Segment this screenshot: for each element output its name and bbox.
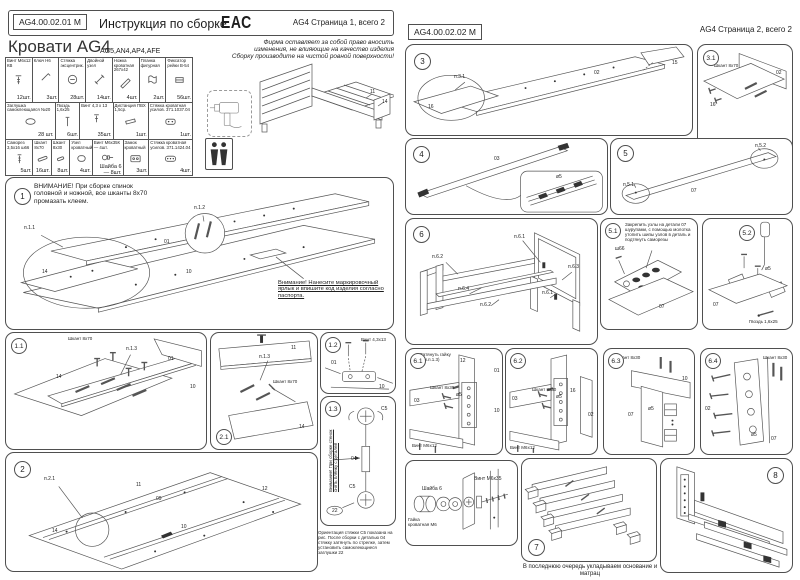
detail-ref-label: п.2.1 bbox=[44, 477, 55, 483]
part-label: 14 bbox=[56, 375, 62, 381]
step5-drawing bbox=[611, 139, 792, 214]
part-qty: 2шт. bbox=[141, 95, 165, 101]
step1-1-drawing bbox=[6, 333, 206, 449]
part-name: Ножка кроватная 267х42 bbox=[114, 59, 138, 73]
step-panel-5-2: 5.2 ø5 07 Гвоздь 1,6х25 bbox=[702, 218, 793, 330]
part-name: Шкант 8х30 bbox=[53, 141, 68, 150]
step-number-2: 2 bbox=[14, 461, 31, 478]
cam-label: С5 bbox=[381, 407, 387, 413]
tools-stamp bbox=[207, 90, 252, 137]
part-label: 10 bbox=[494, 409, 500, 415]
part-cell: Стяжка эксцентрик. 28шт. bbox=[59, 58, 86, 102]
step-panel-6-2: 6.2 03 Шкант 8х30 ø5 16 02 Винт М6х12 bbox=[505, 348, 598, 455]
step-panel-6-3: 6.3 Шкант 8х30 10 ø5 07 bbox=[603, 348, 695, 455]
step-panel-2: 2 п.2.1 11 09 12 10 14 bbox=[5, 452, 318, 572]
page-info: AG4 Страница 2, всего 2 bbox=[700, 26, 792, 35]
step4-drawing bbox=[406, 139, 607, 214]
part-label: 02 bbox=[705, 407, 711, 413]
shaped-plate-icon bbox=[146, 73, 159, 86]
product-models: AG5,AN4,AP4,AFE bbox=[100, 48, 160, 56]
part-label: 10 bbox=[186, 270, 192, 276]
part-name: Стяжка эксцентрик. bbox=[60, 59, 84, 68]
double-bolt-icon bbox=[93, 73, 106, 86]
part-qty: 5шт. bbox=[7, 168, 31, 174]
hex-key-icon bbox=[39, 70, 52, 83]
step6-1-note: Затянуть гайку (см.п.1.3) bbox=[420, 352, 460, 362]
cam-orientation-caption: Ориентация стяжки С5 показана на рис. По… bbox=[318, 530, 396, 555]
part-label: 12 bbox=[460, 359, 466, 365]
part-name: Ключ Н6 bbox=[34, 59, 58, 64]
nut-label: Гайка кроватная М6 bbox=[408, 517, 438, 527]
detail-ref-label: п.1.3 bbox=[259, 355, 270, 361]
part-name: Замок кроватный bbox=[125, 141, 148, 150]
step-number-1-2: 1.2 bbox=[325, 337, 341, 353]
detail-ref-label: п.6.2 bbox=[480, 303, 491, 309]
cam-lock-icon bbox=[66, 73, 79, 86]
doc-code: AG4.00.02.01 М bbox=[13, 14, 87, 30]
step6-drawing bbox=[406, 219, 597, 344]
dowel-label: Шкант 8х30 bbox=[763, 355, 789, 360]
detail-ref-label: п.3.1 bbox=[454, 75, 465, 81]
eac-logo: ЕАС bbox=[221, 13, 252, 33]
part-label: 11 bbox=[136, 483, 141, 489]
part-qty: 4шт. bbox=[114, 95, 138, 101]
dowel-label: Шкант 8х30 bbox=[430, 385, 454, 390]
detail-ref-label: п.1.3 bbox=[126, 347, 137, 353]
step-number-6-4: 6.4 bbox=[705, 353, 721, 369]
part-cell: Шкант 8х30 8шт. bbox=[52, 140, 70, 175]
part-name: Стяжка кроватная усилов. 371.1037.04 bbox=[150, 104, 191, 113]
detail-ref-label: п.1.2 bbox=[194, 206, 205, 212]
step-number-4: 4 bbox=[413, 146, 430, 163]
film-note: Внимание! При сборке стенок снять плёнку… bbox=[328, 428, 338, 492]
step-panel-1-2: 1.2 Винт 4,3х13 01 10 bbox=[320, 332, 396, 394]
nail-icon bbox=[61, 115, 74, 128]
manufacturer-note: Фирма оставляет за собой право вносить и… bbox=[240, 39, 394, 53]
parts-table: Винт М6х12 КВ 12шт. Ключ Н6 3шт. Стяжка … bbox=[5, 57, 193, 176]
step-number-1-3: 1.3 bbox=[325, 401, 341, 417]
dowel-icon bbox=[54, 152, 67, 165]
part-label: 10 bbox=[682, 377, 688, 383]
part-label: 01 bbox=[494, 369, 500, 375]
part-label: 14 bbox=[382, 100, 388, 106]
step-panel-1-3: 1.3 Внимание! При сборке стенок снять пл… bbox=[320, 396, 396, 526]
dowel-label: Шкант 8х70 bbox=[273, 379, 297, 384]
bolt-detail-drawing bbox=[406, 461, 517, 545]
part-qty: Шайба 6 — 8шт. bbox=[94, 164, 122, 175]
part-label: 03 bbox=[512, 397, 518, 403]
part-qty: 6шт. bbox=[57, 132, 79, 138]
part-name: Фиксатор рейки В-54 bbox=[167, 59, 191, 68]
step3-drawing bbox=[406, 45, 692, 135]
two-person-carry-box bbox=[205, 138, 233, 170]
part-qty: 28 шт. bbox=[7, 132, 54, 138]
part-label: 16 bbox=[710, 103, 716, 109]
pvc-spacer-icon bbox=[124, 115, 137, 128]
bed-bracket-icon bbox=[164, 152, 177, 165]
detail-ref-label: п.5.1 bbox=[623, 183, 634, 189]
step-panel-6-4: 6.4 Шкант 8х30 02 ø5 07 bbox=[700, 348, 793, 455]
part-label: 07 bbox=[659, 305, 665, 311]
parts-row-3: Саморез 3,5х16 ш66 5шт. Шкант 8х70 16шт.… bbox=[6, 140, 192, 175]
instruction-page-2: AG4.00.02.02 М AG4 Страница 2, всего 2 3… bbox=[400, 0, 800, 580]
part-qty: 12шт. bbox=[7, 95, 31, 101]
part-name: Саморез 3,5х16 ш66 bbox=[7, 141, 31, 150]
part-label: 04 bbox=[351, 457, 357, 463]
part-cell: Гвоздь 1,6х25 6шт. bbox=[56, 103, 81, 140]
marking-note: Внимание! Нанесите маркировочный ярлык и… bbox=[278, 280, 390, 299]
part-cell: Стяжка кроватная усилов. 371.1424.04 4шт… bbox=[149, 140, 192, 175]
part-cell: Замок кроватный 3шт. bbox=[124, 140, 150, 175]
part-name: Гвоздь 1,6х25 bbox=[57, 104, 79, 113]
detail-ref-label: п.6.3 bbox=[568, 265, 579, 271]
washer-label: Шайба 6 bbox=[422, 487, 442, 493]
step-panel-1: 1 ВНИМАНИЕ! При сборке спинок головной и… bbox=[5, 177, 394, 330]
product-title: Кровати AG4 bbox=[8, 37, 111, 56]
part-cell: Заглушка самоклеющаяся №20 28 шт. bbox=[6, 103, 56, 140]
step-number-5-2: 5.2 bbox=[739, 225, 755, 241]
step-panel-5-1: 5.1 Закрепить узлы на детали 07 шурупами… bbox=[600, 218, 698, 330]
step7-caption: В последнюю очередь укладываем основание… bbox=[520, 564, 660, 577]
part-label: 15 bbox=[672, 61, 678, 67]
step2-drawing bbox=[6, 453, 317, 571]
screw-icon bbox=[90, 112, 103, 125]
step-panel-5: 5 п.5.2 п.5.1 07 bbox=[610, 138, 793, 215]
detail-ref-label: п.6.4 bbox=[458, 287, 469, 293]
step1-warning: ВНИМАНИЕ! При сборке спинок головной и н… bbox=[34, 183, 160, 205]
part-cell: Винт М6х12 КВ 12шт. bbox=[6, 58, 33, 102]
part-label: 03 bbox=[414, 399, 420, 405]
part-name: Винт М6х12 КВ bbox=[7, 59, 31, 68]
step-number-5: 5 bbox=[617, 145, 634, 162]
part-label: 07 bbox=[628, 413, 634, 419]
screw-label: Винт 4,3х13 bbox=[361, 337, 386, 342]
part-qty: 1шт. bbox=[115, 132, 147, 138]
lock-plate-icon bbox=[129, 152, 142, 165]
part-qty: 3шт. bbox=[125, 168, 148, 174]
step-number-5-1: 5.1 bbox=[605, 223, 621, 239]
part-qty: 8шт. bbox=[53, 168, 68, 174]
part-label: 10 bbox=[181, 525, 187, 531]
step-number-1-1: 1.1 bbox=[11, 338, 27, 354]
step-panel-7: 7 bbox=[521, 458, 657, 562]
step-number-8: 8 bbox=[767, 467, 784, 484]
bed-bracket-icon bbox=[164, 115, 177, 128]
part-name: Шкант 8х70 bbox=[34, 141, 49, 150]
dowel-label: Шкант 8х70 bbox=[714, 63, 738, 68]
part-cell: Стяжка кроватная усилов. 371.1037.04 1шт… bbox=[149, 103, 192, 140]
part-label: 11 bbox=[370, 90, 375, 96]
step-number-3: 3 bbox=[414, 53, 431, 70]
two-person-carry-icon bbox=[206, 139, 232, 169]
part-name: Винт 4,3 х 13 bbox=[81, 104, 111, 109]
part-label: 02 bbox=[594, 71, 600, 77]
assembly-instruction-scan: { "p1": { "header": {"doc_code":"AG4.00.… bbox=[0, 0, 800, 580]
step-number-6-3: 6.3 bbox=[608, 353, 624, 369]
diameter-label: ø5 bbox=[456, 393, 462, 399]
part-cell: Планка фигурная 2шт. bbox=[140, 58, 167, 102]
nail-label: Гвоздь 1,6х25 bbox=[749, 319, 778, 324]
detail-ref-label: п.6.2 bbox=[432, 255, 443, 261]
part-label: 14 bbox=[299, 425, 305, 431]
bolt-detail-panel: Шайба 6 Винт М6х35 Гайка кроватная М6 bbox=[405, 460, 518, 546]
bed-leg-icon bbox=[119, 76, 132, 89]
part-cell: Фиксатор рейки В-54 56шт. bbox=[166, 58, 192, 102]
part-name: Узел кроватный bbox=[71, 141, 91, 150]
part-name: Заглушка самоклеющаяся №20 bbox=[7, 104, 54, 113]
part-cell: Шкант 8х70 16шт. bbox=[33, 140, 51, 175]
slat-fixator-icon bbox=[173, 73, 186, 86]
doc-title: Инструкция по сборке bbox=[99, 17, 227, 31]
part-label: 07 bbox=[713, 303, 719, 309]
part-label: 10 bbox=[190, 385, 196, 391]
part-label: 12 bbox=[262, 487, 268, 493]
dowel-label: Шкант 8х30 bbox=[532, 387, 556, 392]
diameter-label: ø5 bbox=[556, 395, 562, 401]
step-panel-3: 3 п.3.1 02 15 16 bbox=[405, 44, 693, 136]
cap-icon bbox=[24, 115, 37, 128]
part-label: 02 bbox=[776, 71, 782, 77]
detail-ref-label: п.6.1 bbox=[514, 235, 525, 241]
part-label: 11 bbox=[291, 346, 296, 352]
part-label: 02 bbox=[588, 413, 594, 419]
step-number-7: 7 bbox=[528, 539, 545, 556]
part-label: 09 bbox=[156, 497, 162, 503]
step-number-2-1: 2.1 bbox=[216, 429, 232, 445]
part-name: Планка фигурная bbox=[141, 59, 165, 68]
part-label: 14 bbox=[52, 529, 58, 535]
step-number-6-2: 6.2 bbox=[510, 353, 526, 369]
bed-unit-icon bbox=[75, 152, 88, 165]
detail-ref-label: п.1.1 bbox=[24, 226, 35, 232]
part-cell: Саморез 3,5х16 ш66 5шт. bbox=[6, 140, 33, 175]
step-panel-1-1: 1.1 Шкант 8х70 п.1.3 01 14 10 bbox=[5, 332, 207, 450]
diameter-label: ø5 bbox=[765, 267, 771, 273]
doc-code: AG4.00.02.02 М bbox=[408, 24, 482, 40]
part-name: Винт М6х35К — 4шт. bbox=[94, 141, 122, 150]
step-number-6: 6 bbox=[413, 226, 430, 243]
part-qty: 16шт. bbox=[34, 168, 49, 174]
step-panel-6-1: 6.1 Затянуть гайку (см.п.1.3) 12 01 Шкан… bbox=[405, 348, 503, 455]
step-panel-8: 8 bbox=[660, 458, 793, 573]
part-label: 14 bbox=[42, 270, 48, 276]
step-number-1: 1 bbox=[14, 188, 31, 205]
part-label: 10 bbox=[379, 385, 385, 391]
screw-icon bbox=[12, 73, 25, 86]
part-name: Двойной узел bbox=[87, 59, 111, 68]
step-panel-2-1: 2.1 п.1.3 11 Шкант 8х70 14 bbox=[210, 332, 318, 450]
part-cell: Узел кроватный 4шт. bbox=[70, 140, 93, 175]
part-cell: Винт М6х35К — 4шт. Шайба 6 — 8шт. bbox=[93, 140, 124, 175]
surface-note: Сборку производите на чистой ровной пове… bbox=[232, 53, 394, 60]
part-qty: 3шт. bbox=[34, 95, 58, 101]
step5-1-note: Закрепить узлы на детали 07 шурупами, с … bbox=[625, 222, 693, 242]
part-label: 07 bbox=[771, 437, 777, 443]
page1-header: AG4.00.02.01 М Инструкция по сборке ЕАС … bbox=[8, 10, 394, 36]
part-qty: 4шт. bbox=[71, 168, 91, 174]
diameter-label: ø5 bbox=[556, 175, 562, 181]
drill-icon bbox=[208, 91, 251, 136]
part-cell: Ключ Н6 3шт. bbox=[33, 58, 60, 102]
bolt-washer-icon bbox=[101, 151, 114, 164]
diameter-label: ø5 bbox=[648, 407, 654, 413]
page-info: AG4 Страница 1, всего 2 bbox=[293, 19, 385, 28]
detail-ref-label: п.6.1 bbox=[542, 291, 553, 297]
diameter-label: ø5 bbox=[751, 433, 757, 439]
part-qty: 14шт. bbox=[87, 95, 111, 101]
part-cell: Дистанция ПВХ 1,5ср. 1шт. bbox=[114, 103, 149, 140]
part-label: 07 bbox=[691, 189, 697, 195]
cam-label: С5 bbox=[349, 485, 355, 491]
self-tapping-screw-icon bbox=[13, 152, 26, 165]
instruction-page-1: AG4.00.02.01 М Инструкция по сборке ЕАС … bbox=[0, 0, 400, 580]
bolt-label: Винт М6х35 bbox=[474, 477, 502, 483]
step-panel-4: 4 03 ø5 bbox=[405, 138, 608, 215]
step-number-3-1: 3.1 bbox=[703, 50, 719, 66]
assembled-bed-figure: 11 14 bbox=[248, 52, 394, 172]
part-qty: 56шт. bbox=[167, 95, 191, 101]
part-label: 01 bbox=[331, 361, 337, 367]
assembled-bed-drawing bbox=[248, 52, 394, 172]
part-cell: Ножка кроватная 267х42 4шт. bbox=[113, 58, 140, 102]
detail-ref-label: п.5.2 bbox=[755, 144, 766, 150]
screw-label: Винт М6х12 bbox=[510, 445, 535, 450]
parts-row-2: Заглушка самоклеющаяся №20 28 шт. Гвоздь… bbox=[6, 103, 192, 141]
part-cell: Двойной узел 14шт. bbox=[86, 58, 113, 102]
screw-label: Винт М6х12 bbox=[412, 443, 437, 448]
screw-label: ш66 bbox=[615, 247, 625, 253]
dowel-label: Шкант 8х70 bbox=[68, 336, 92, 341]
dowel-icon bbox=[36, 152, 49, 165]
part-label: 01 bbox=[164, 240, 170, 246]
part-name: Дистанция ПВХ 1,5ср. bbox=[115, 104, 147, 113]
part-name: Стяжка кроватная усилов. 371.1424.04 bbox=[150, 141, 191, 150]
part-label: 01 bbox=[168, 357, 174, 363]
cap-label: 22 bbox=[332, 509, 338, 515]
part-label: 16 bbox=[570, 389, 576, 395]
part-qty: 1шт. bbox=[150, 132, 191, 138]
part-qty: 35шт. bbox=[81, 132, 111, 138]
part-label: 03 bbox=[494, 157, 500, 163]
step-number-6-1: 6.1 bbox=[410, 353, 426, 369]
part-label: 16 bbox=[428, 105, 434, 111]
parts-row-1: Винт М6х12 КВ 12шт. Ключ Н6 3шт. Стяжка … bbox=[6, 58, 192, 103]
part-cell: Винт 4,3 х 13 35шт. bbox=[80, 103, 113, 140]
step-panel-6: 6 п.6.1 п.6.2 п.6.3 п.6.4 п.6.1 п.6.2 bbox=[405, 218, 598, 345]
part-qty: 4шт. bbox=[150, 168, 191, 174]
part-qty: 28шт. bbox=[60, 95, 84, 101]
